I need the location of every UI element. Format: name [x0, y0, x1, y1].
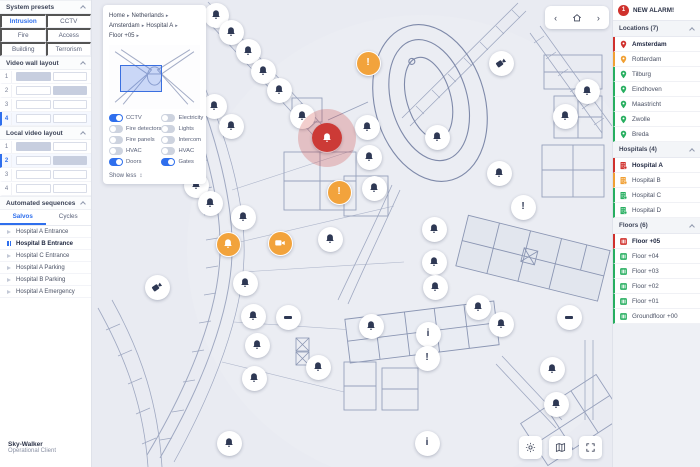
play-icon [7, 266, 11, 270]
floor-icon [619, 311, 628, 322]
map-pin-icon [619, 69, 628, 80]
hospital-item[interactable]: Hospital A [613, 158, 700, 173]
layout-tile [16, 86, 51, 95]
preset-label: Building [12, 46, 34, 53]
layout-tile [16, 114, 51, 123]
camera-icon [493, 55, 510, 72]
toggle-label: Intercom [178, 137, 201, 143]
map-pin-icon [619, 129, 628, 140]
map-marker[interactable]: ! i [268, 231, 293, 256]
row-number: 2 [2, 155, 12, 167]
local-video-rows: 1 2 3 [0, 140, 91, 196]
hospital-label: Hospital B [632, 177, 661, 184]
building-icon [619, 160, 628, 171]
map-marker[interactable]: ! i [575, 79, 600, 104]
map-marker[interactable]: ! i [233, 271, 258, 296]
alarm-bell-icon [559, 110, 571, 122]
section-title: Video wall layout [6, 60, 59, 67]
breadcrumb-item[interactable]: Hospital A [146, 21, 178, 31]
location-label: Maastricht [632, 101, 661, 108]
floor-icon [619, 251, 628, 262]
floor-item[interactable]: Floor +04 [613, 249, 700, 264]
layer-toggle[interactable]: Intercom [161, 135, 203, 146]
breadcrumb-item[interactable]: Home [109, 11, 130, 21]
layout-tile [53, 100, 88, 109]
location-label: Rotterdam [632, 56, 661, 63]
map-marker[interactable]: ! i [540, 357, 565, 382]
playback-icon-slot[interactable] [6, 254, 12, 258]
row-number: 4 [2, 183, 12, 195]
video-wall-row[interactable]: 1 [0, 70, 91, 84]
camera-icon [274, 237, 286, 249]
home-icon [572, 13, 582, 23]
video-wall-row[interactable]: 3 [0, 98, 91, 112]
alert-icon: ! [366, 58, 369, 68]
alarm-bell-icon [204, 197, 216, 209]
layer-toggle[interactable]: Electricity [161, 113, 203, 124]
brightness-icon [525, 442, 536, 453]
toggle-label: Gates [178, 159, 193, 165]
chevron-up-icon [80, 131, 86, 137]
hospitals-list: Hospital A Hospital B Hospital C Hospi [613, 158, 700, 218]
row-number: 3 [2, 169, 12, 181]
map-marker[interactable]: ! i [231, 205, 256, 230]
location-label: Zwolle [632, 116, 650, 123]
map-marker[interactable]: ! i [362, 176, 387, 201]
layout-preview [12, 154, 91, 167]
hospital-label: Hospital D [632, 207, 661, 214]
map-marker[interactable]: ! i [245, 333, 270, 358]
section-local-video-layout[interactable]: Local video layout [0, 126, 91, 140]
floor-item[interactable]: Groundfloor +00 [613, 309, 700, 324]
location-label: Amsterdam [632, 41, 667, 48]
toggle-switch-icon[interactable] [109, 158, 123, 166]
toggle-label: Doors [126, 159, 141, 165]
alarm-label: NEW ALARM! [633, 7, 674, 14]
layer-toggle[interactable]: Fire detectors [109, 124, 161, 135]
chevron-left-icon: ‹ [554, 13, 557, 23]
fullscreen-button[interactable] [579, 436, 602, 459]
playback-icon-slot[interactable] [6, 230, 12, 234]
preset-label: Access [59, 32, 79, 39]
sequence-item[interactable]: Hospital B Entrance [0, 238, 91, 250]
sequence-tab[interactable]: Cycles [46, 210, 92, 225]
preset-label: Intrusion [10, 18, 37, 25]
system-preset-grid: Intrusion CCTV Fire Access Building Terr… [0, 14, 91, 56]
info-icon: i [427, 329, 430, 339]
alert-icon: ! [337, 187, 340, 197]
layout-preview [12, 140, 91, 153]
local-video-row[interactable]: 4 [0, 182, 91, 196]
playback-icon-slot[interactable] [6, 266, 12, 270]
layer-toggle[interactable]: Lights [161, 124, 203, 135]
layout-tile [53, 184, 88, 193]
layer-toggle[interactable]: Gates [161, 157, 203, 168]
toggle-label: Electricity [178, 115, 203, 121]
hospital-item[interactable]: Hospital B [613, 173, 700, 188]
section-title: Locations (7) [619, 25, 658, 32]
breadcrumb-item[interactable]: Floor +05 [109, 31, 139, 41]
playback-icon-slot[interactable] [6, 278, 12, 282]
map-marker[interactable]: ! i [306, 355, 331, 380]
breadcrumb-item[interactable]: Netherlands [132, 11, 169, 21]
layer-toggle[interactable]: HVAC [109, 146, 161, 157]
new-alarm-bar[interactable]: 1 NEW ALARM! [613, 0, 700, 21]
toggle-label: Fire detectors [126, 126, 161, 132]
alarm-bell-icon [363, 151, 375, 163]
map-marker[interactable]: ! i [219, 114, 244, 139]
toggle-switch-icon[interactable] [109, 136, 123, 144]
alarm-bell-icon [273, 84, 285, 96]
map-navigation: ‹ › [545, 6, 609, 29]
chevron-right-icon: › [597, 13, 600, 23]
alarm-bell-icon [239, 277, 251, 289]
sequence-item[interactable]: Hospital A Emergency [0, 286, 91, 298]
layout-preview [12, 112, 91, 125]
alarm-bell-icon [247, 310, 259, 322]
chevron-up-icon [80, 61, 86, 67]
location-label: Tilburg [632, 71, 651, 78]
alarm-bell-icon [237, 211, 249, 223]
alert-icon: ! [425, 353, 428, 363]
system-preset-button[interactable]: Fire [0, 28, 46, 42]
sequence-label: Hospital A Emergency [16, 289, 75, 295]
layout-preview [12, 70, 91, 83]
map-marker[interactable]: ! i [145, 275, 170, 300]
playback-icon-slot[interactable] [6, 290, 12, 294]
layer-toggle[interactable]: CCTV [109, 113, 161, 124]
sequence-label: Hospital B Entrance [16, 241, 73, 247]
building-icon [619, 205, 628, 216]
toggle-switch-icon[interactable] [161, 158, 175, 166]
play-icon [7, 254, 11, 258]
section-title: Local video layout [6, 130, 63, 137]
map-marker[interactable]: ! i [355, 115, 380, 140]
nav-home-button[interactable] [566, 6, 587, 29]
chevron-up-icon [80, 201, 86, 207]
app-subtitle: Operational Client [8, 448, 83, 454]
alarm-bell-icon [251, 339, 263, 351]
sequence-label: Hospital A Entrance [16, 229, 68, 235]
minimap[interactable] [109, 45, 200, 109]
map-marker[interactable]: ! i [242, 366, 267, 391]
section-hospitals[interactable]: Hospitals (4) [613, 142, 700, 158]
location-item[interactable]: Amsterdam [613, 37, 700, 52]
map-marker[interactable]: ! i [267, 78, 292, 103]
alert-icon: ! [521, 202, 524, 212]
map-pin-icon [619, 114, 628, 125]
map-marker[interactable]: ! i [466, 295, 491, 320]
floor-label: Floor +03 [632, 268, 659, 275]
app-window: System presets Intrusion CCTV Fire Acces… [0, 0, 700, 467]
layout-tile [16, 142, 51, 151]
section-automated-sequences[interactable]: Automated sequences [0, 196, 91, 210]
system-preset-button[interactable]: Access [46, 28, 92, 42]
map-controls [519, 436, 602, 459]
sequence-list: Hospital A Entrance Hospital B Entrance … [0, 226, 91, 298]
section-locations[interactable]: Locations (7) [613, 21, 700, 37]
show-less-label: Show less [109, 173, 136, 179]
sequence-item[interactable]: Hospital C Entrance [0, 250, 91, 262]
nav-back-button[interactable]: ‹ [545, 6, 566, 29]
map-overview-panel: HomeNetherlandsAmsterdamHospital AFloor … [103, 5, 206, 184]
floor-icon [619, 281, 628, 292]
map-marker[interactable]: ! i [511, 195, 536, 220]
layout-tile [53, 156, 88, 165]
floor-icon [619, 296, 628, 307]
map-marker[interactable]: ! i [357, 145, 382, 170]
system-preset-button[interactable]: Intrusion [0, 14, 46, 28]
layout-tile [16, 156, 51, 165]
nav-forward-button[interactable]: › [588, 6, 609, 29]
floor-item[interactable]: Floor +05 [613, 234, 700, 249]
alarm-bell-icon [225, 120, 237, 132]
layout-preview [12, 98, 91, 111]
location-label: Eindhoven [632, 86, 662, 93]
toggle-label: Fire panels [126, 137, 155, 143]
floor-label: Groundfloor +00 [632, 313, 678, 320]
minimap-viewport[interactable] [120, 65, 162, 92]
floors-list: Floor +05 Floor +04 Floor +03 Floor +0 [613, 234, 700, 324]
alarm-bell-icon [222, 238, 234, 250]
alarm-bell-icon [429, 281, 441, 293]
sequence-tab[interactable]: Salvos [0, 210, 46, 225]
map-marker[interactable]: ! i [423, 275, 448, 300]
row-number: 3 [2, 99, 12, 111]
floor-plan-map[interactable]: ! i ! i ! i ! [92, 0, 612, 467]
sequence-label: Hospital B Parking [16, 277, 65, 283]
hospital-label: Hospital A [632, 162, 663, 169]
location-item[interactable]: Eindhoven [613, 82, 700, 97]
chevron-up-icon [689, 27, 695, 33]
play-icon [7, 230, 11, 234]
floor-label: Floor +01 [632, 298, 659, 305]
map-pin-icon [619, 54, 628, 65]
fullscreen-icon [585, 442, 596, 453]
toggle-label: HVAC [126, 148, 142, 154]
alarm-bell-icon [368, 182, 380, 194]
alarm-bell-icon [365, 320, 377, 332]
layer-toggle[interactable]: HVAC [161, 146, 203, 157]
hospital-item[interactable]: Hospital D [613, 203, 700, 218]
alarm-bell-icon [472, 301, 484, 313]
floor-item[interactable]: Floor +01 [613, 294, 700, 309]
alarm-bell-icon [495, 318, 507, 330]
map-marker[interactable]: ! i [422, 217, 447, 242]
play-icon [7, 278, 11, 282]
location-item[interactable]: Zwolle [613, 112, 700, 127]
sequence-tabs: Salvos Cycles [0, 210, 91, 226]
map-marker[interactable]: ! i [276, 305, 301, 330]
location-item[interactable]: Tilburg [613, 67, 700, 82]
layout-tile [16, 100, 51, 109]
alarm-bell-icon [257, 65, 269, 77]
layer-toggle[interactable]: Doors [109, 157, 161, 168]
pause-icon [7, 241, 11, 246]
sequence-item[interactable]: Hospital A Parking [0, 262, 91, 274]
location-item[interactable]: Maastricht [613, 97, 700, 112]
map-marker[interactable]: ! i [416, 322, 441, 347]
sequence-item[interactable]: Hospital B Parking [0, 274, 91, 286]
toggle-label: CCTV [126, 115, 142, 121]
toggle-switch-icon[interactable] [109, 147, 123, 155]
chevron-up-icon [689, 148, 695, 154]
row-number: 4 [2, 113, 12, 125]
map-marker[interactable]: ! i [415, 346, 440, 371]
map-marker[interactable]: ! i [359, 314, 384, 339]
system-preset-button[interactable]: Building [0, 42, 46, 56]
map-marker[interactable]: ! i [318, 227, 343, 252]
chevron-up-icon [689, 224, 695, 230]
floor-label: Floor +02 [632, 283, 659, 290]
alarm-bell-icon [550, 398, 562, 410]
building-icon [619, 190, 628, 201]
toggle-label: HVAC [178, 148, 194, 154]
alarm-bell-icon [225, 26, 237, 38]
layout-tile [16, 72, 51, 81]
breadcrumb: HomeNetherlandsAmsterdamHospital AFloor … [109, 11, 200, 42]
toggle-switch-icon[interactable] [109, 114, 123, 122]
preset-label: Fire [18, 32, 29, 39]
floor-item[interactable]: Floor +03 [613, 264, 700, 279]
hospital-item[interactable]: Hospital C [613, 188, 700, 203]
locations-list: Amsterdam Rotterdam Tilburg Eindhoven [613, 37, 700, 142]
hospital-label: Hospital C [632, 192, 661, 199]
sequence-label: Hospital C Entrance [16, 253, 69, 259]
video-wall-row[interactable]: 2 [0, 84, 91, 98]
section-title: Floors (6) [619, 222, 648, 229]
app-name: Sky-Walker [8, 441, 83, 448]
section-system-presets[interactable]: System presets [0, 0, 91, 14]
location-label: Breda [632, 131, 649, 138]
alarm-bell-icon [210, 9, 222, 21]
map-marker[interactable]: ! i [487, 161, 512, 186]
section-title: Automated sequences [6, 200, 75, 207]
map-marker[interactable]: ! i [241, 304, 266, 329]
preset-label: CCTV [60, 18, 77, 25]
video-wall-row[interactable]: 4 [0, 112, 91, 126]
layout-tile [53, 86, 88, 95]
toggle-switch-icon[interactable] [161, 114, 175, 122]
local-video-row[interactable]: 3 [0, 168, 91, 182]
layout-tile [16, 170, 51, 179]
local-video-row[interactable]: 2 [0, 154, 91, 168]
alarm-bell-icon [324, 233, 336, 245]
alarm-bell-icon [242, 45, 254, 57]
toggle-switch-icon[interactable] [161, 125, 175, 133]
map-view-button[interactable] [549, 436, 572, 459]
layer-toggles: CCTV Electricity Fire detectors Lights F… [109, 113, 200, 168]
left-sidebar: System presets Intrusion CCTV Fire Acces… [0, 0, 92, 467]
section-video-wall-layout[interactable]: Video wall layout [0, 56, 91, 70]
location-item[interactable]: Rotterdam [613, 52, 700, 67]
map-pin-icon [619, 84, 628, 95]
alarm-bell-icon [208, 100, 220, 112]
row-number: 1 [2, 141, 12, 153]
layout-tile [53, 72, 88, 81]
map-marker[interactable]: ! i [425, 125, 450, 150]
section-title: Hospitals (4) [619, 146, 657, 153]
map-pin-icon [619, 99, 628, 110]
map-marker[interactable]: ! i [544, 392, 569, 417]
toggle-switch-icon[interactable] [161, 147, 175, 155]
alarm-bell-icon [312, 361, 324, 373]
toggle-switch-icon[interactable] [109, 125, 123, 133]
layer-toggle[interactable]: Fire panels [109, 135, 161, 146]
map-marker[interactable]: ! i [489, 312, 514, 337]
map-marker[interactable]: ! i [422, 250, 447, 275]
layout-tile [53, 170, 88, 179]
layout-preview [12, 84, 91, 97]
layout-tile [53, 142, 88, 151]
camera-icon [149, 279, 166, 296]
row-number: 2 [2, 85, 12, 97]
alarm-bell-icon [321, 132, 333, 144]
map-marker[interactable]: ! i [415, 431, 440, 456]
map-marker[interactable]: ! i [217, 431, 242, 456]
floor-item[interactable]: Floor +02 [613, 279, 700, 294]
door-icon [565, 316, 573, 319]
sort-arrows-icon: ↕ [139, 173, 142, 179]
layout-tile [53, 114, 88, 123]
map-marker[interactable]: ! i [557, 305, 582, 330]
tab-label: Cycles [59, 213, 78, 220]
map-marker[interactable]: ! i [327, 180, 352, 205]
right-sidebar: 1 NEW ALARM! Locations (7) Amsterdam Rot… [612, 0, 700, 467]
alarm-bell-icon [431, 131, 443, 143]
system-preset-button[interactable]: Terrorism [46, 42, 92, 56]
alarm-count-badge: 1 [618, 5, 629, 16]
playback-icon-slot[interactable] [6, 241, 12, 246]
location-item[interactable]: Breda [613, 127, 700, 142]
map-marker[interactable]: ! i [216, 232, 241, 257]
show-less-link[interactable]: Show less ↕ [109, 173, 200, 179]
map-marker[interactable]: ! i [312, 123, 342, 153]
alarm-bell-icon [223, 437, 235, 449]
breadcrumb-item[interactable]: Amsterdam [109, 21, 144, 31]
sequence-label: Hospital A Parking [16, 265, 65, 271]
floor-label: Floor +04 [632, 253, 659, 260]
section-floors[interactable]: Floors (6) [613, 218, 700, 234]
system-preset-button[interactable]: CCTV [46, 14, 92, 28]
map-marker[interactable]: ! i [356, 51, 381, 76]
alarm-bell-icon [428, 223, 440, 235]
alarm-bell-icon [428, 256, 440, 268]
sequence-item[interactable]: Hospital A Entrance [0, 226, 91, 238]
map-marker[interactable]: ! i [198, 191, 223, 216]
layout-tile [16, 184, 51, 193]
brightness-button[interactable] [519, 436, 542, 459]
map-marker[interactable]: ! i [553, 104, 578, 129]
toggle-switch-icon[interactable] [161, 136, 175, 144]
section-title: System presets [6, 4, 54, 11]
play-icon [7, 290, 11, 294]
alarm-bell-icon [361, 121, 373, 133]
map-marker[interactable]: ! i [489, 51, 514, 76]
door-icon [284, 316, 292, 319]
chevron-up-icon [80, 5, 86, 11]
preset-label: Terrorism [56, 46, 82, 53]
video-wall-rows: 1 2 3 [0, 70, 91, 126]
map-pin-icon [619, 39, 628, 50]
local-video-row[interactable]: 1 [0, 140, 91, 154]
alarm-bell-icon [493, 167, 505, 179]
floor-icon [619, 266, 628, 277]
building-icon [619, 175, 628, 186]
floor-icon [619, 236, 628, 247]
row-number: 1 [2, 71, 12, 83]
tab-label: Salvos [13, 213, 33, 220]
